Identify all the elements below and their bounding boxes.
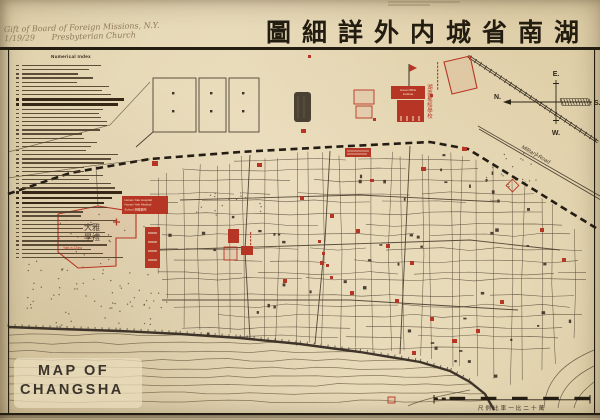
legend-entry (22, 86, 109, 87)
legend-title: Numerical Index (12, 54, 130, 59)
legend-entry (22, 167, 84, 168)
legend-entry (22, 197, 112, 199)
corner-label-line2: CHANGSHA (20, 381, 124, 400)
numerical-index-legend: Numerical Index (12, 54, 130, 261)
mission-marker (540, 228, 544, 232)
military-road: Military Road (478, 126, 600, 200)
legend-entry (22, 103, 118, 105)
legend-entry (22, 211, 83, 212)
scale-caption: 尺例比率一比二十萬 (478, 404, 546, 412)
mission-marker (308, 55, 311, 58)
legend-entry (22, 249, 91, 250)
mission-marker (318, 240, 321, 243)
mission-marker (386, 244, 390, 248)
compass-rose: E. W. S. N. (494, 71, 600, 137)
legend-entry (22, 179, 89, 180)
legend-entry (22, 129, 100, 130)
legend-entry (22, 73, 78, 74)
mission-compound-outline (354, 90, 374, 104)
mission-marker (462, 147, 467, 151)
legend-entry (22, 125, 107, 126)
mission-marker (395, 299, 399, 303)
legend-entry (22, 109, 103, 110)
legend-entry (22, 175, 103, 176)
mission-sites: Hunan BibleInstitute湖南聖經學校Hunan-Yale Hos… (58, 55, 566, 403)
legend-entry (22, 220, 116, 221)
legend-entry (22, 82, 77, 83)
mission-marker (476, 329, 480, 333)
legend-entry (22, 158, 111, 159)
legend-entry (22, 94, 111, 95)
legend-entry (22, 121, 107, 122)
mission-compound-outline (224, 247, 237, 260)
mission-marker (452, 339, 457, 343)
legend-entry (22, 162, 104, 163)
corner-label-line1: MAP OF (38, 362, 124, 381)
mission-marker (228, 229, 239, 243)
mission-marker (562, 258, 566, 262)
mission-marker (373, 118, 376, 121)
legend-entry (22, 187, 115, 188)
mission-compound-outline (356, 106, 372, 118)
north-arrowhead (503, 99, 511, 105)
legend-entry (22, 90, 102, 91)
legend-entry (22, 232, 105, 233)
legend-entries-illegible (12, 65, 130, 258)
legend-entry (22, 77, 93, 78)
library-stamp (388, 1, 460, 7)
mission-marker (412, 351, 416, 355)
legend-entry (22, 191, 122, 193)
legend-entry (22, 228, 83, 229)
legend-entry (22, 244, 107, 245)
mission-marker (330, 214, 334, 218)
mission-diamond-marker (506, 179, 519, 192)
mission-marker (330, 276, 333, 279)
mission-marker (356, 229, 360, 233)
mission-marker (301, 129, 306, 133)
legend-entry (22, 253, 103, 254)
svg-text:Institute: Institute (403, 92, 414, 96)
pond (294, 92, 311, 122)
legend-entry (22, 183, 111, 184)
map-title-chinese: 圖細詳外内城省南湖 (266, 13, 590, 49)
railway-line (467, 55, 598, 143)
mission-marker (350, 291, 354, 295)
mission-marker (152, 161, 158, 166)
legend-entry (22, 117, 101, 118)
legend-entry (22, 240, 93, 241)
legend-entry (22, 154, 118, 155)
mission-marker (320, 261, 324, 265)
street-network (150, 152, 586, 385)
compass-north-label: N. (494, 94, 501, 101)
legend-entry (22, 215, 81, 216)
mission-marker (326, 264, 329, 267)
mission-marker (257, 163, 262, 167)
map-of-changsha-label: MAP OF CHANGSHA (20, 362, 124, 400)
legend-entry (22, 236, 112, 237)
legend-entry (22, 224, 93, 225)
mission-marker (410, 261, 414, 265)
red-label-box (345, 148, 371, 157)
legend-entry (22, 69, 89, 70)
compass-west-label: W. (552, 130, 560, 137)
mission-compound-outline (388, 397, 395, 403)
svg-text:湖南聖經學校: 湖南聖經學校 (427, 83, 433, 120)
legend-entry (22, 146, 91, 147)
mission-marker (300, 196, 304, 200)
map-scan: Military Road (0, 0, 600, 420)
legend-entry (22, 138, 84, 139)
legend-entry (22, 133, 82, 134)
mission-marker (322, 252, 325, 255)
mission-marker (500, 300, 504, 304)
legend-entry (22, 150, 86, 151)
mission-marker (370, 179, 374, 182)
city-buildings (168, 154, 571, 378)
legend-entry (22, 207, 107, 208)
scale-bar: 尺例比率一比二十萬 (434, 395, 590, 412)
legend-entry (22, 202, 104, 204)
railway-station-compound (444, 56, 477, 94)
mission-marker (430, 317, 434, 321)
legend-entry (22, 171, 84, 172)
mission-marker (421, 167, 426, 171)
legend-entry (22, 142, 97, 143)
compass-east-label: E. (553, 71, 560, 78)
flag-icon (409, 64, 417, 72)
legend-entry (22, 65, 101, 66)
mission-marker (283, 279, 287, 283)
legend-entry (22, 257, 123, 258)
legend-entry (22, 98, 124, 100)
drill-ground-rects (136, 78, 259, 147)
legend-entry (22, 113, 99, 114)
handwriting-date: 1/19/29 (4, 33, 35, 43)
